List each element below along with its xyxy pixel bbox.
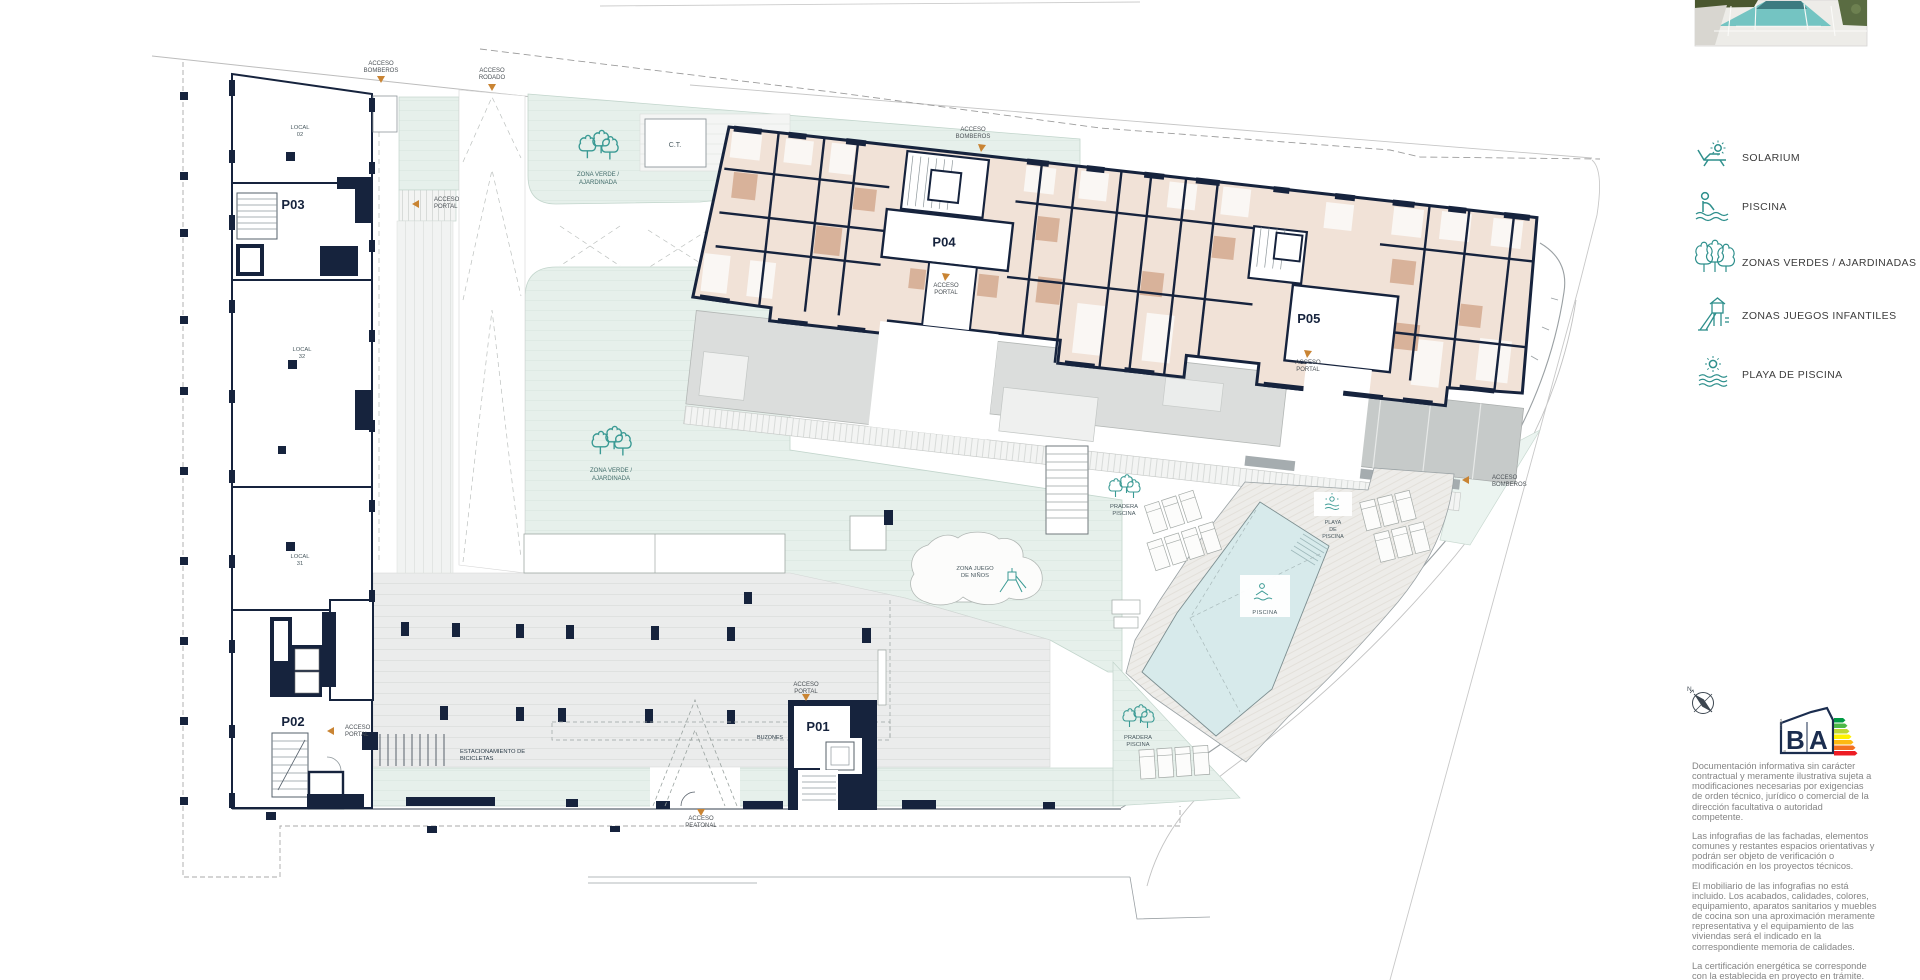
svg-text:P04: P04 (932, 235, 956, 250)
svg-text:32: 32 (299, 354, 305, 360)
svg-text:ZONA VERDE /: ZONA VERDE / (577, 172, 619, 178)
svg-text:RODADO: RODADO (479, 75, 506, 81)
svg-text:PISCINA: PISCINA (1126, 742, 1149, 748)
svg-text:AJARDINADA: AJARDINADA (579, 180, 617, 186)
svg-text:A: A (1809, 725, 1828, 755)
svg-text:PORTAL: PORTAL (1296, 367, 1320, 373)
svg-text:PISCINA: PISCINA (1112, 511, 1135, 517)
svg-text:P05: P05 (1297, 311, 1320, 326)
svg-text:ACCESO: ACCESO (434, 197, 460, 203)
svg-text:PRADERA: PRADERA (1110, 504, 1138, 510)
svg-text:P02: P02 (281, 714, 304, 729)
svg-text:B: B (1786, 725, 1805, 755)
svg-text:P01: P01 (806, 719, 829, 734)
svg-text:ESTACIONAMIENTO DE: ESTACIONAMIENTO DE (460, 749, 525, 755)
svg-text:ACCESO: ACCESO (688, 816, 714, 822)
svg-text:ZONA JUEGO: ZONA JUEGO (956, 566, 994, 572)
svg-text:31: 31 (297, 561, 303, 567)
svg-text:DE: DE (1329, 527, 1337, 533)
svg-text:energia: energia (1779, 719, 1783, 730)
svg-text:PORTAL: PORTAL (434, 204, 458, 210)
svg-text:PRADERA: PRADERA (1124, 735, 1152, 741)
svg-text:ACCESO: ACCESO (933, 283, 959, 289)
svg-text:BUZONES: BUZONES (757, 735, 783, 741)
svg-text:PLAYA: PLAYA (1325, 520, 1342, 526)
svg-text:PORTAL: PORTAL (934, 290, 958, 296)
svg-text:ACCESO: ACCESO (479, 68, 505, 74)
svg-text:BOMBEROS: BOMBEROS (364, 68, 399, 74)
svg-text:ACCESO: ACCESO (1492, 475, 1518, 481)
svg-text:PEATONAL: PEATONAL (685, 823, 717, 829)
svg-text:ACCESO: ACCESO (368, 61, 394, 67)
svg-text:02: 02 (297, 132, 303, 138)
svg-text:P03: P03 (281, 197, 304, 212)
svg-text:BOMBEROS: BOMBEROS (1492, 482, 1527, 488)
svg-text:PORTAL: PORTAL (345, 732, 369, 738)
svg-text:PISCINA: PISCINA (1252, 610, 1277, 616)
svg-text:LOCAL: LOCAL (292, 347, 312, 353)
svg-text:DE NIÑOS: DE NIÑOS (961, 572, 989, 579)
svg-text:ACCESO: ACCESO (1295, 360, 1321, 366)
svg-text:ZONA VERDE /: ZONA VERDE / (590, 468, 632, 474)
svg-text:BICICLETAS: BICICLETAS (460, 756, 494, 762)
svg-text:AJARDINADA: AJARDINADA (592, 476, 630, 482)
svg-text:BOMBEROS: BOMBEROS (956, 134, 991, 140)
svg-text:ACCESO: ACCESO (345, 725, 371, 731)
svg-text:C.T.: C.T. (669, 142, 682, 149)
svg-text:LOCAL: LOCAL (290, 125, 310, 131)
svg-text:PISCINA: PISCINA (1322, 534, 1344, 540)
svg-text:ACCESO: ACCESO (793, 682, 819, 688)
svg-text:ACCESO: ACCESO (960, 127, 986, 133)
svg-text:LOCAL: LOCAL (290, 554, 310, 560)
